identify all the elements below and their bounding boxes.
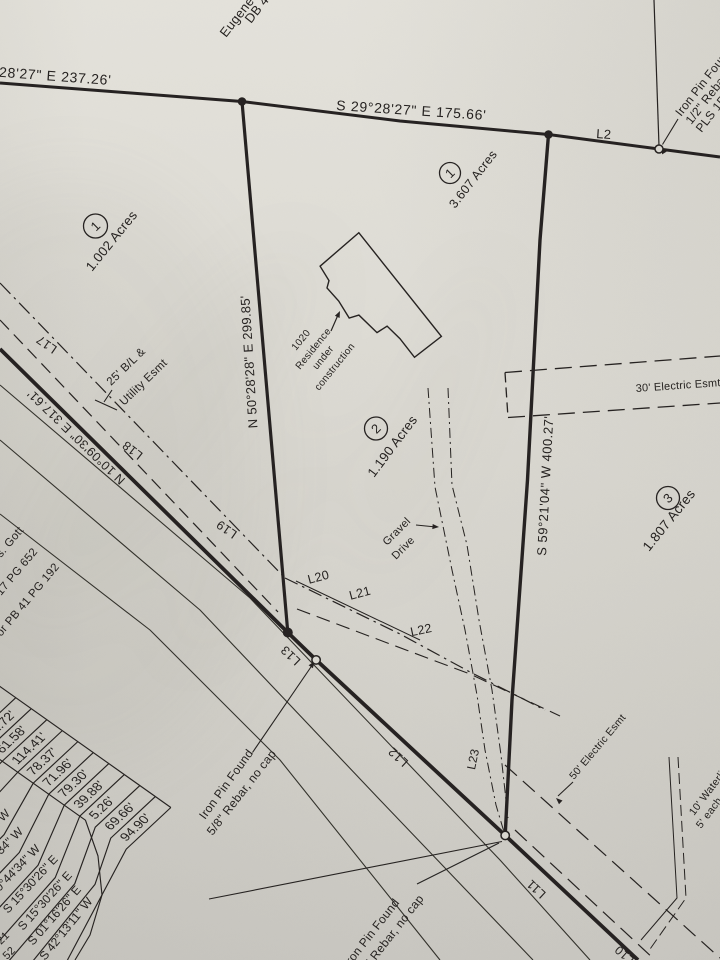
svg-text:L2: L2 (596, 126, 612, 142)
